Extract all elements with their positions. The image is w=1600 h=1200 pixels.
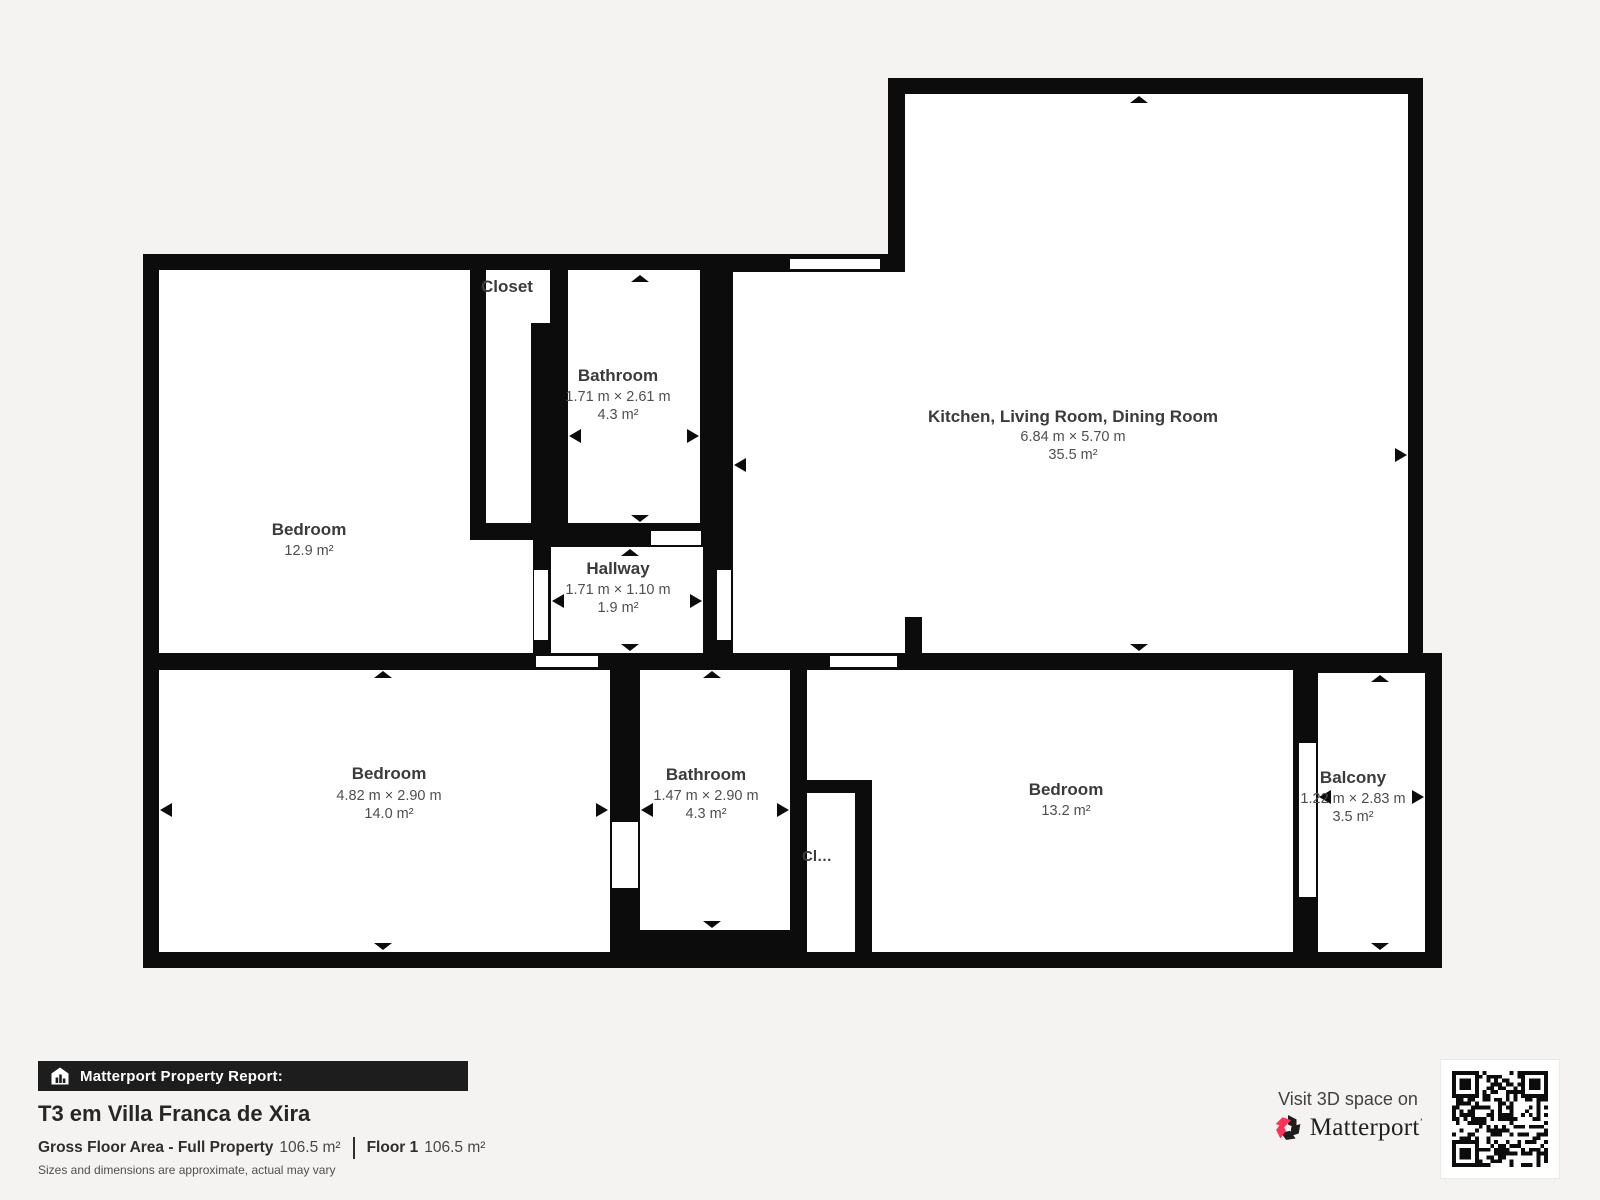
report-header-label: Matterport Property Report: [80, 1068, 283, 1085]
disclaimer-note: Sizes and dimensions are approximate, ac… [38, 1163, 335, 1177]
visit-3d-text: Visit 3D space on [1248, 1089, 1448, 1110]
room-dims: 6.84 m × 5.70 m [1020, 429, 1125, 445]
room-dims: 1.71 m × 2.61 m [565, 389, 670, 405]
qr-code [1452, 1071, 1548, 1167]
label-closet-top: Closet [481, 277, 533, 296]
room-dims: 1.71 m × 1.10 m [565, 582, 670, 598]
gross-area-value: 106.5 m² [279, 1139, 340, 1157]
room-area: 4.3 m² [597, 407, 638, 423]
room-name: Bedroom [272, 520, 347, 539]
wall-stub [905, 617, 922, 653]
door-hallway-right [717, 570, 731, 640]
report-header-bar: Matterport Property Report: [38, 1061, 468, 1091]
door-bathroom-top [651, 531, 701, 545]
floor-plan: Closet Bathroom 1.71 m × 2.61 m 4.3 m² K… [0, 0, 1600, 1010]
window-balcony [1299, 743, 1316, 897]
room-name: Closet [481, 277, 533, 296]
room-dims: 1.47 m × 2.90 m [653, 788, 758, 804]
room-name: Bedroom [1029, 780, 1104, 799]
label-closet-bottom: Cl… [802, 848, 832, 865]
property-title: T3 em Villa Franca de Xira [38, 1101, 310, 1127]
matterport-wordmark: Matterport’ [1310, 1114, 1424, 1142]
room-area: 14.0 m² [364, 806, 413, 822]
window-corridor [790, 259, 880, 269]
area-stats: Gross Floor Area - Full Property 106.5 m… [38, 1137, 485, 1159]
room-area: 1.9 m² [597, 600, 638, 616]
room-area: 35.5 m² [1048, 447, 1097, 463]
door-bedroom-bottom-left [612, 822, 638, 888]
room-dims: 4.82 m × 2.90 m [336, 788, 441, 804]
room-kitchen-corridor [733, 272, 905, 653]
room-name: Hallway [586, 559, 650, 578]
room-area: 4.3 m² [685, 806, 726, 822]
matterport-logo-icon [1273, 1113, 1303, 1143]
floor-label: Floor 1 [367, 1139, 419, 1157]
door-hallway-left [534, 570, 548, 640]
qr-code-card [1440, 1059, 1560, 1179]
gross-area-label: Gross Floor Area - Full Property [38, 1139, 273, 1157]
room-area: 12.9 m² [284, 543, 333, 559]
room-name: Bathroom [666, 765, 746, 784]
room-closet-bottom [807, 793, 855, 952]
room-area: 13.2 m² [1041, 803, 1090, 819]
room-name: Balcony [1320, 768, 1387, 787]
matterport-brand: Matterport’ [1248, 1113, 1448, 1143]
room-dims: 1.22 m × 2.83 m [1300, 791, 1405, 807]
divider [353, 1137, 355, 1159]
room-kitchen-living-dining [905, 94, 1408, 653]
room-name: Kitchen, Living Room, Dining Room [928, 407, 1218, 426]
house-report-icon [50, 1066, 70, 1086]
floor-value: 106.5 m² [424, 1139, 485, 1157]
room-area: 3.5 m² [1332, 809, 1373, 825]
door-kitchen-bottom [830, 656, 897, 667]
room-name: Bathroom [578, 366, 658, 385]
room-name: Bedroom [352, 764, 427, 783]
door-hallway-bottom [536, 656, 598, 667]
room-name: Cl… [802, 848, 832, 865]
